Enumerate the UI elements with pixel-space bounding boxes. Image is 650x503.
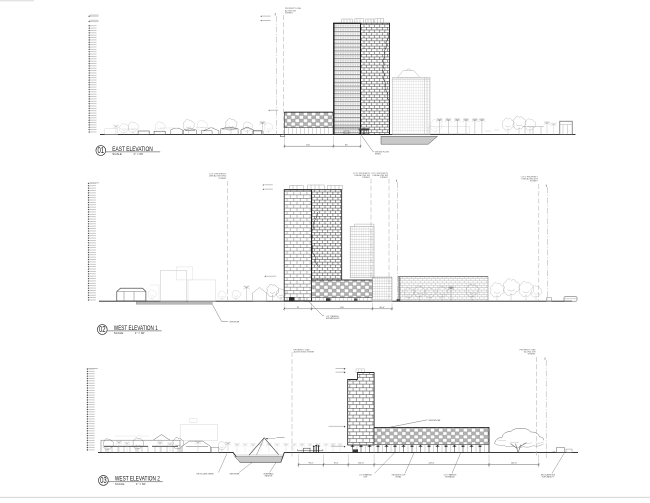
svg-text:WEST ELEVATION 2: WEST ELEVATION 2 xyxy=(115,476,160,483)
svg-text:02: 02 xyxy=(99,325,106,334)
svg-text:NEW RIVER: NEW RIVER xyxy=(230,474,240,476)
svg-text:SCALE: SCALE xyxy=(115,482,125,486)
svg-text:STREET: STREET xyxy=(285,12,294,14)
svg-text:70’-0”: 70’-0” xyxy=(334,463,339,465)
svg-text:STREET: STREET xyxy=(218,178,227,180)
svg-text:80’-0”: 80’-0” xyxy=(380,307,385,309)
svg-text:RETAIL: RETAIL xyxy=(375,152,381,155)
svg-text:1” = 60’: 1” = 60’ xyxy=(133,152,143,156)
svg-text:SCALE: SCALE xyxy=(112,152,122,156)
svg-text:STREET: STREET xyxy=(380,177,389,179)
svg-text:STREET: STREET xyxy=(362,177,371,179)
svg-text:RETAIL: RETAIL xyxy=(396,475,402,478)
svg-text:160’: 160’ xyxy=(340,307,344,309)
svg-text:150’-0”: 150’-0” xyxy=(358,463,364,465)
svg-text:ENTRANCE/EXIT: ENTRANCE/EXIT xyxy=(326,317,340,320)
svg-text:TURN FACILITY: TURN FACILITY xyxy=(542,475,555,478)
svg-text:NEW RIVER: NEW RIVER xyxy=(230,322,240,324)
svg-text:RESIDENTIAL: RESIDENTIAL xyxy=(429,419,441,422)
svg-text:THE VILLAGE GREEN: THE VILLAGE GREEN xyxy=(196,473,214,476)
svg-text:WEST ELEVATION 1: WEST ELEVATION 1 xyxy=(114,325,158,332)
svg-text:140’-0”: 140’-0” xyxy=(511,463,517,465)
svg-text:1” = 60’: 1” = 60’ xyxy=(136,482,146,486)
svg-text:140’: 140’ xyxy=(306,144,310,146)
svg-text:90’-0”: 90’-0” xyxy=(309,463,314,465)
svg-text:EAST ELEVATION: EAST ELEVATION xyxy=(112,146,153,153)
svg-text:SCALE: SCALE xyxy=(114,331,124,335)
svg-text:PAVILION: PAVILION xyxy=(265,475,273,478)
svg-text:STREET: STREET xyxy=(530,181,539,183)
svg-text:ALONG KING STREET: ALONG KING STREET xyxy=(294,351,316,354)
svg-text:242’-0”: 242’-0” xyxy=(429,463,435,465)
svg-text:1” = 60’: 1” = 60’ xyxy=(135,331,145,335)
svg-text:01: 01 xyxy=(98,146,105,155)
svg-text:03: 03 xyxy=(100,476,107,485)
svg-text:EXIT: EXIT xyxy=(364,476,368,478)
svg-text:ENTRANCE: ENTRANCE xyxy=(445,475,455,478)
svg-text:STREET: STREET xyxy=(528,354,537,356)
